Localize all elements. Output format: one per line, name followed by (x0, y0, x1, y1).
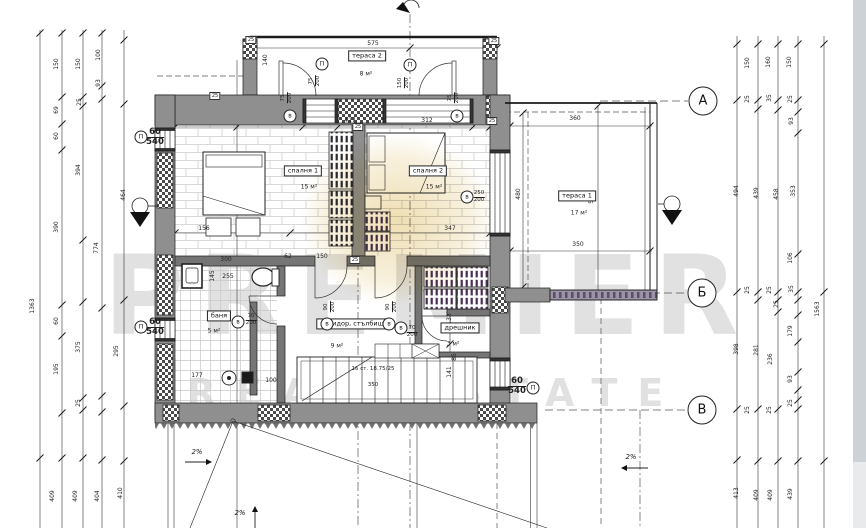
door-marker: в (232, 316, 245, 329)
slope-label: 2% (191, 448, 202, 456)
dim-label: 360 (569, 116, 580, 122)
dim-label: 25 (488, 37, 499, 45)
dim-label: 93 (789, 117, 795, 125)
section-marker-top (396, 0, 419, 13)
dim-label: 409 (754, 489, 760, 500)
dim-label: 60 (54, 317, 60, 325)
dim-label: 404 (95, 490, 101, 501)
room-label: тераса 1 (558, 190, 596, 201)
room-label: баня (207, 310, 231, 321)
door-marker: в (284, 110, 297, 123)
dim-label: 300 (220, 257, 231, 263)
room-area-label: 5 м² (208, 328, 221, 335)
dim-label: 150 (316, 254, 327, 260)
opening-size-label: 150200 (398, 78, 410, 89)
window-marker: П (316, 58, 329, 71)
dim-label: 458 (774, 188, 780, 199)
dim-label: 140 (263, 54, 269, 65)
bedroom-divider-wall (352, 125, 365, 256)
slope-arrows (185, 459, 648, 528)
dim-label: 25 (77, 98, 83, 106)
dim-label: 62 (284, 254, 292, 260)
wardrobe-closet (424, 267, 488, 309)
dim-label: 439 (754, 187, 760, 198)
room-area-label: 15 м² (426, 184, 442, 191)
dim-label: 179 (788, 325, 794, 336)
dim-label: 413 (734, 487, 740, 498)
toilet-icon (252, 268, 279, 286)
opening-size-label: 75200 (448, 93, 460, 104)
scrollbar[interactable] (853, 0, 866, 528)
opening-size-label: 60540 (508, 377, 526, 395)
room-area-label: 3 м² (447, 341, 460, 348)
dim-label: 1563 (815, 301, 821, 316)
room-label: тераса 2 (348, 50, 386, 61)
dim-label: 35 (767, 94, 773, 102)
floor-plan-canvas: PREMIER REAL ESTATE (0, 0, 866, 528)
dim-label: 281 (754, 344, 760, 355)
dim-label: 150 (54, 58, 60, 69)
dim-label: 25 (788, 95, 794, 103)
grid-bubble-В: В (688, 396, 717, 425)
dim-label: 141 (447, 366, 453, 377)
dim-label: 312 (421, 118, 432, 124)
sink-icon (182, 264, 202, 288)
dim-label: 60 (54, 132, 60, 140)
dim-label: 236 (768, 353, 774, 364)
dim-label: 353 (791, 185, 797, 196)
dim-label: 93 (96, 79, 102, 87)
dim-label: 25 (486, 117, 497, 125)
dim-label: 347 (444, 226, 455, 232)
dim-label: 25 (352, 123, 363, 131)
opening-size-label: 60540 (146, 318, 164, 336)
opening-size-label: 70200 (407, 326, 418, 338)
room-label: спалня 2 (409, 165, 447, 176)
door-marker: в (451, 110, 464, 123)
door-marker: в (461, 191, 474, 204)
slope-label: 2% (234, 509, 245, 517)
section-marker-right (658, 196, 682, 225)
dim-label: 774 (94, 242, 100, 253)
door-marker: в (395, 322, 408, 335)
window-marker: П (135, 321, 148, 334)
dim-label: 398 (734, 343, 740, 354)
dim-label: 150 (76, 58, 82, 69)
dim-label: 25 (76, 399, 82, 407)
opening-size-label: 70200 (246, 314, 257, 326)
dim-label: 1363 (30, 298, 36, 313)
opening-size-label: 75200 (309, 76, 321, 87)
grid-lines (157, 14, 688, 528)
dim-label: 150 (745, 57, 751, 68)
plan-drawing (0, 0, 866, 528)
dim-label: 25 (745, 95, 751, 103)
opening-size-label: 60540 (146, 128, 164, 146)
dim-label: 410 (118, 487, 124, 498)
dim-label: 390 (54, 221, 60, 232)
dim-label: 25 (788, 399, 794, 407)
room-label: спалня 1 (284, 165, 322, 176)
dim-label: 25 (745, 286, 751, 294)
room-area-label: 15 м² (301, 184, 317, 191)
dim-label: 25 (767, 406, 773, 414)
dim-label: 25 (245, 36, 256, 44)
dim-label: 35 (789, 285, 795, 293)
dim-label: 85 (452, 353, 458, 361)
stair-note: 16 ст. 18.75/25 (351, 366, 394, 372)
dim-label: 575 (367, 41, 378, 47)
room-label: дрешник (441, 322, 480, 333)
stair-width: 350 (368, 382, 379, 388)
dim-label: 255 (222, 274, 233, 280)
dim-label: 100 (265, 378, 276, 384)
dim-label: 464 (121, 189, 127, 200)
dim-label: 150 (787, 56, 793, 67)
opening-size-label: 75200 (281, 93, 293, 104)
dim-label: 394 (76, 164, 82, 175)
dim-label: 106 (788, 252, 794, 263)
room-area-label: 8 м² (360, 71, 373, 78)
grid-bubble-А: А (689, 87, 718, 116)
room-area-label: 17 м² (571, 210, 587, 217)
dim-label: 145 (210, 270, 216, 281)
slope-label: 2% (625, 453, 636, 461)
dim-label: 295 (114, 345, 120, 356)
dim-label: 409 (50, 490, 56, 501)
dim-label: 195 (54, 363, 60, 374)
dim-label: 494 (734, 185, 740, 196)
dim-label: 25 (349, 256, 360, 264)
dim-label: 93 (788, 375, 794, 383)
dim-label: 25 (767, 286, 773, 294)
dim-label: 480 (516, 188, 522, 199)
dim-label: 160 (766, 56, 772, 67)
dim-label: 25 (209, 92, 220, 100)
wardrobe-central (329, 132, 353, 246)
window-marker: П (404, 59, 417, 72)
dim-label: 25 (745, 406, 751, 414)
window-marker: П (135, 131, 148, 144)
opening-size-label: 90200 (324, 302, 336, 313)
dim-label: 156 (198, 226, 209, 232)
dim-label: 409 (73, 490, 79, 501)
dim-label: 69 (54, 106, 60, 114)
dim-label: 100 (96, 49, 102, 60)
opening-size-label: 250200 (474, 191, 485, 203)
dim-label: 25 (774, 300, 780, 308)
dim-label: 177 (191, 373, 202, 379)
dim-label: 409 (768, 489, 774, 500)
grid-bubble-Б: Б (688, 279, 717, 308)
section-marker-left (130, 198, 157, 227)
scrollbar-track (853, 462, 866, 528)
opening-size-label: 90200 (386, 302, 398, 313)
dim-label: 350 (572, 242, 583, 248)
window-marker: П (527, 382, 540, 395)
room-area-label: 9 м² (331, 343, 344, 350)
dim-label: 375 (76, 341, 82, 352)
dim-label: 439 (788, 488, 794, 499)
door-marker: в (321, 318, 334, 331)
